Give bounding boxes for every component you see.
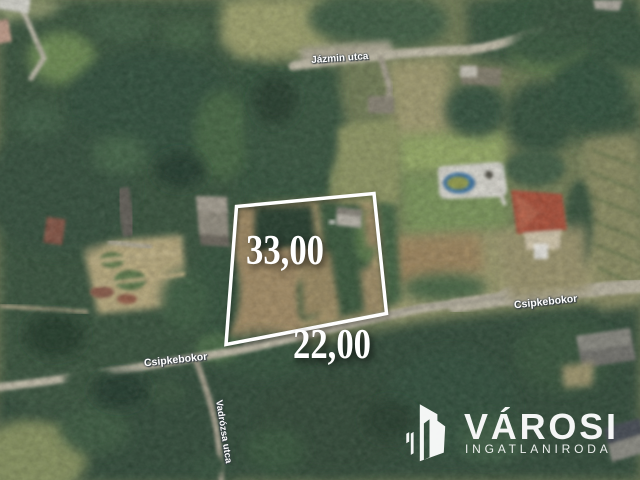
- svg-text:22,00: 22,00: [293, 322, 371, 368]
- svg-text:VÁROSI: VÁROSI: [464, 406, 619, 447]
- svg-text:33,00: 33,00: [246, 228, 324, 274]
- svg-text:INGATLANIRODA: INGATLANIRODA: [465, 442, 612, 456]
